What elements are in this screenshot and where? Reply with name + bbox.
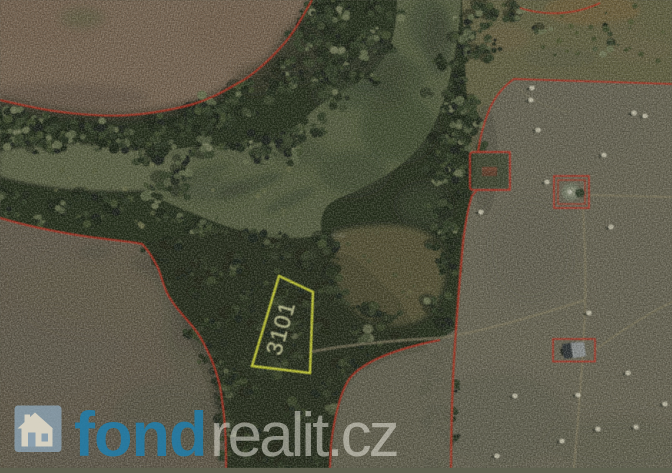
svg-text:fond: fond	[74, 400, 206, 468]
svg-text:realit.cz: realit.cz	[210, 401, 397, 468]
